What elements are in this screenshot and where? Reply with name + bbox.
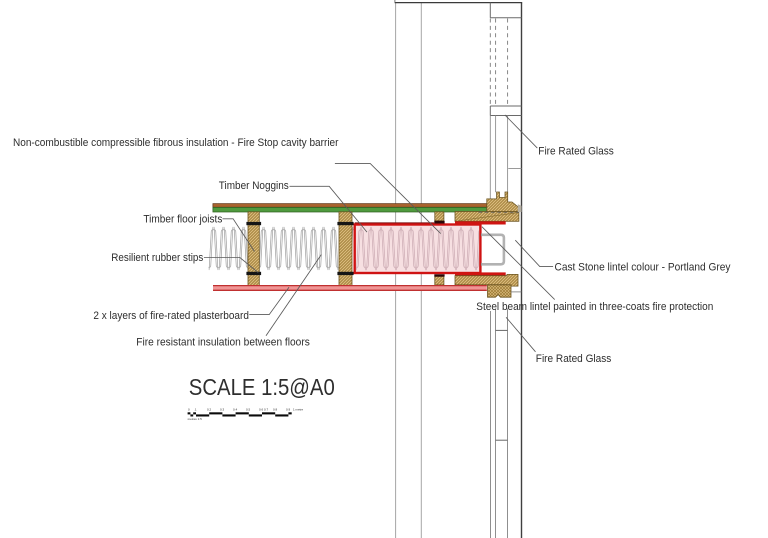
- svg-text:SCALE 1:5@A0: SCALE 1:5@A0: [189, 374, 335, 400]
- svg-text:0.5: 0.5: [246, 408, 251, 412]
- svg-text:0.9: 0.9: [286, 408, 291, 412]
- svg-text:1 metre: 1 metre: [293, 408, 304, 412]
- svg-text:Fire resistant insulation betw: Fire resistant insulation between floors: [136, 336, 309, 348]
- svg-text:2 x layers of fire-rated plast: 2 x layers of fire-rated plasterboard: [93, 310, 249, 322]
- svg-text:0.8: 0.8: [273, 408, 278, 412]
- svg-text:Steel beam lintel painted in t: Steel beam lintel painted in three-coats…: [476, 301, 713, 313]
- svg-text:Fire Rated Glass: Fire Rated Glass: [536, 353, 612, 365]
- svg-text:Cast Stone lintel colour - Por: Cast Stone lintel colour - Portland Grey: [555, 262, 732, 274]
- svg-text:0: 0: [188, 408, 190, 412]
- svg-text:0.2: 0.2: [207, 408, 212, 412]
- svg-text:.1: .1: [194, 408, 197, 412]
- svg-text:Resilient rubber stips: Resilient rubber stips: [111, 252, 203, 264]
- svg-text:Non-combustible compressible f: Non-combustible compressible fibrous ins…: [13, 137, 339, 149]
- svg-text:0.6 0.7: 0.6 0.7: [259, 408, 269, 412]
- svg-text:Fire Rated Glass: Fire Rated Glass: [538, 145, 614, 157]
- svg-text:0.4: 0.4: [233, 408, 238, 412]
- svg-text:metres 1:5: metres 1:5: [188, 417, 203, 421]
- svg-text:0.3: 0.3: [220, 408, 225, 412]
- svg-text:Timber floor joists: Timber floor joists: [143, 214, 222, 226]
- svg-text:Timber Noggins: Timber Noggins: [219, 180, 289, 192]
